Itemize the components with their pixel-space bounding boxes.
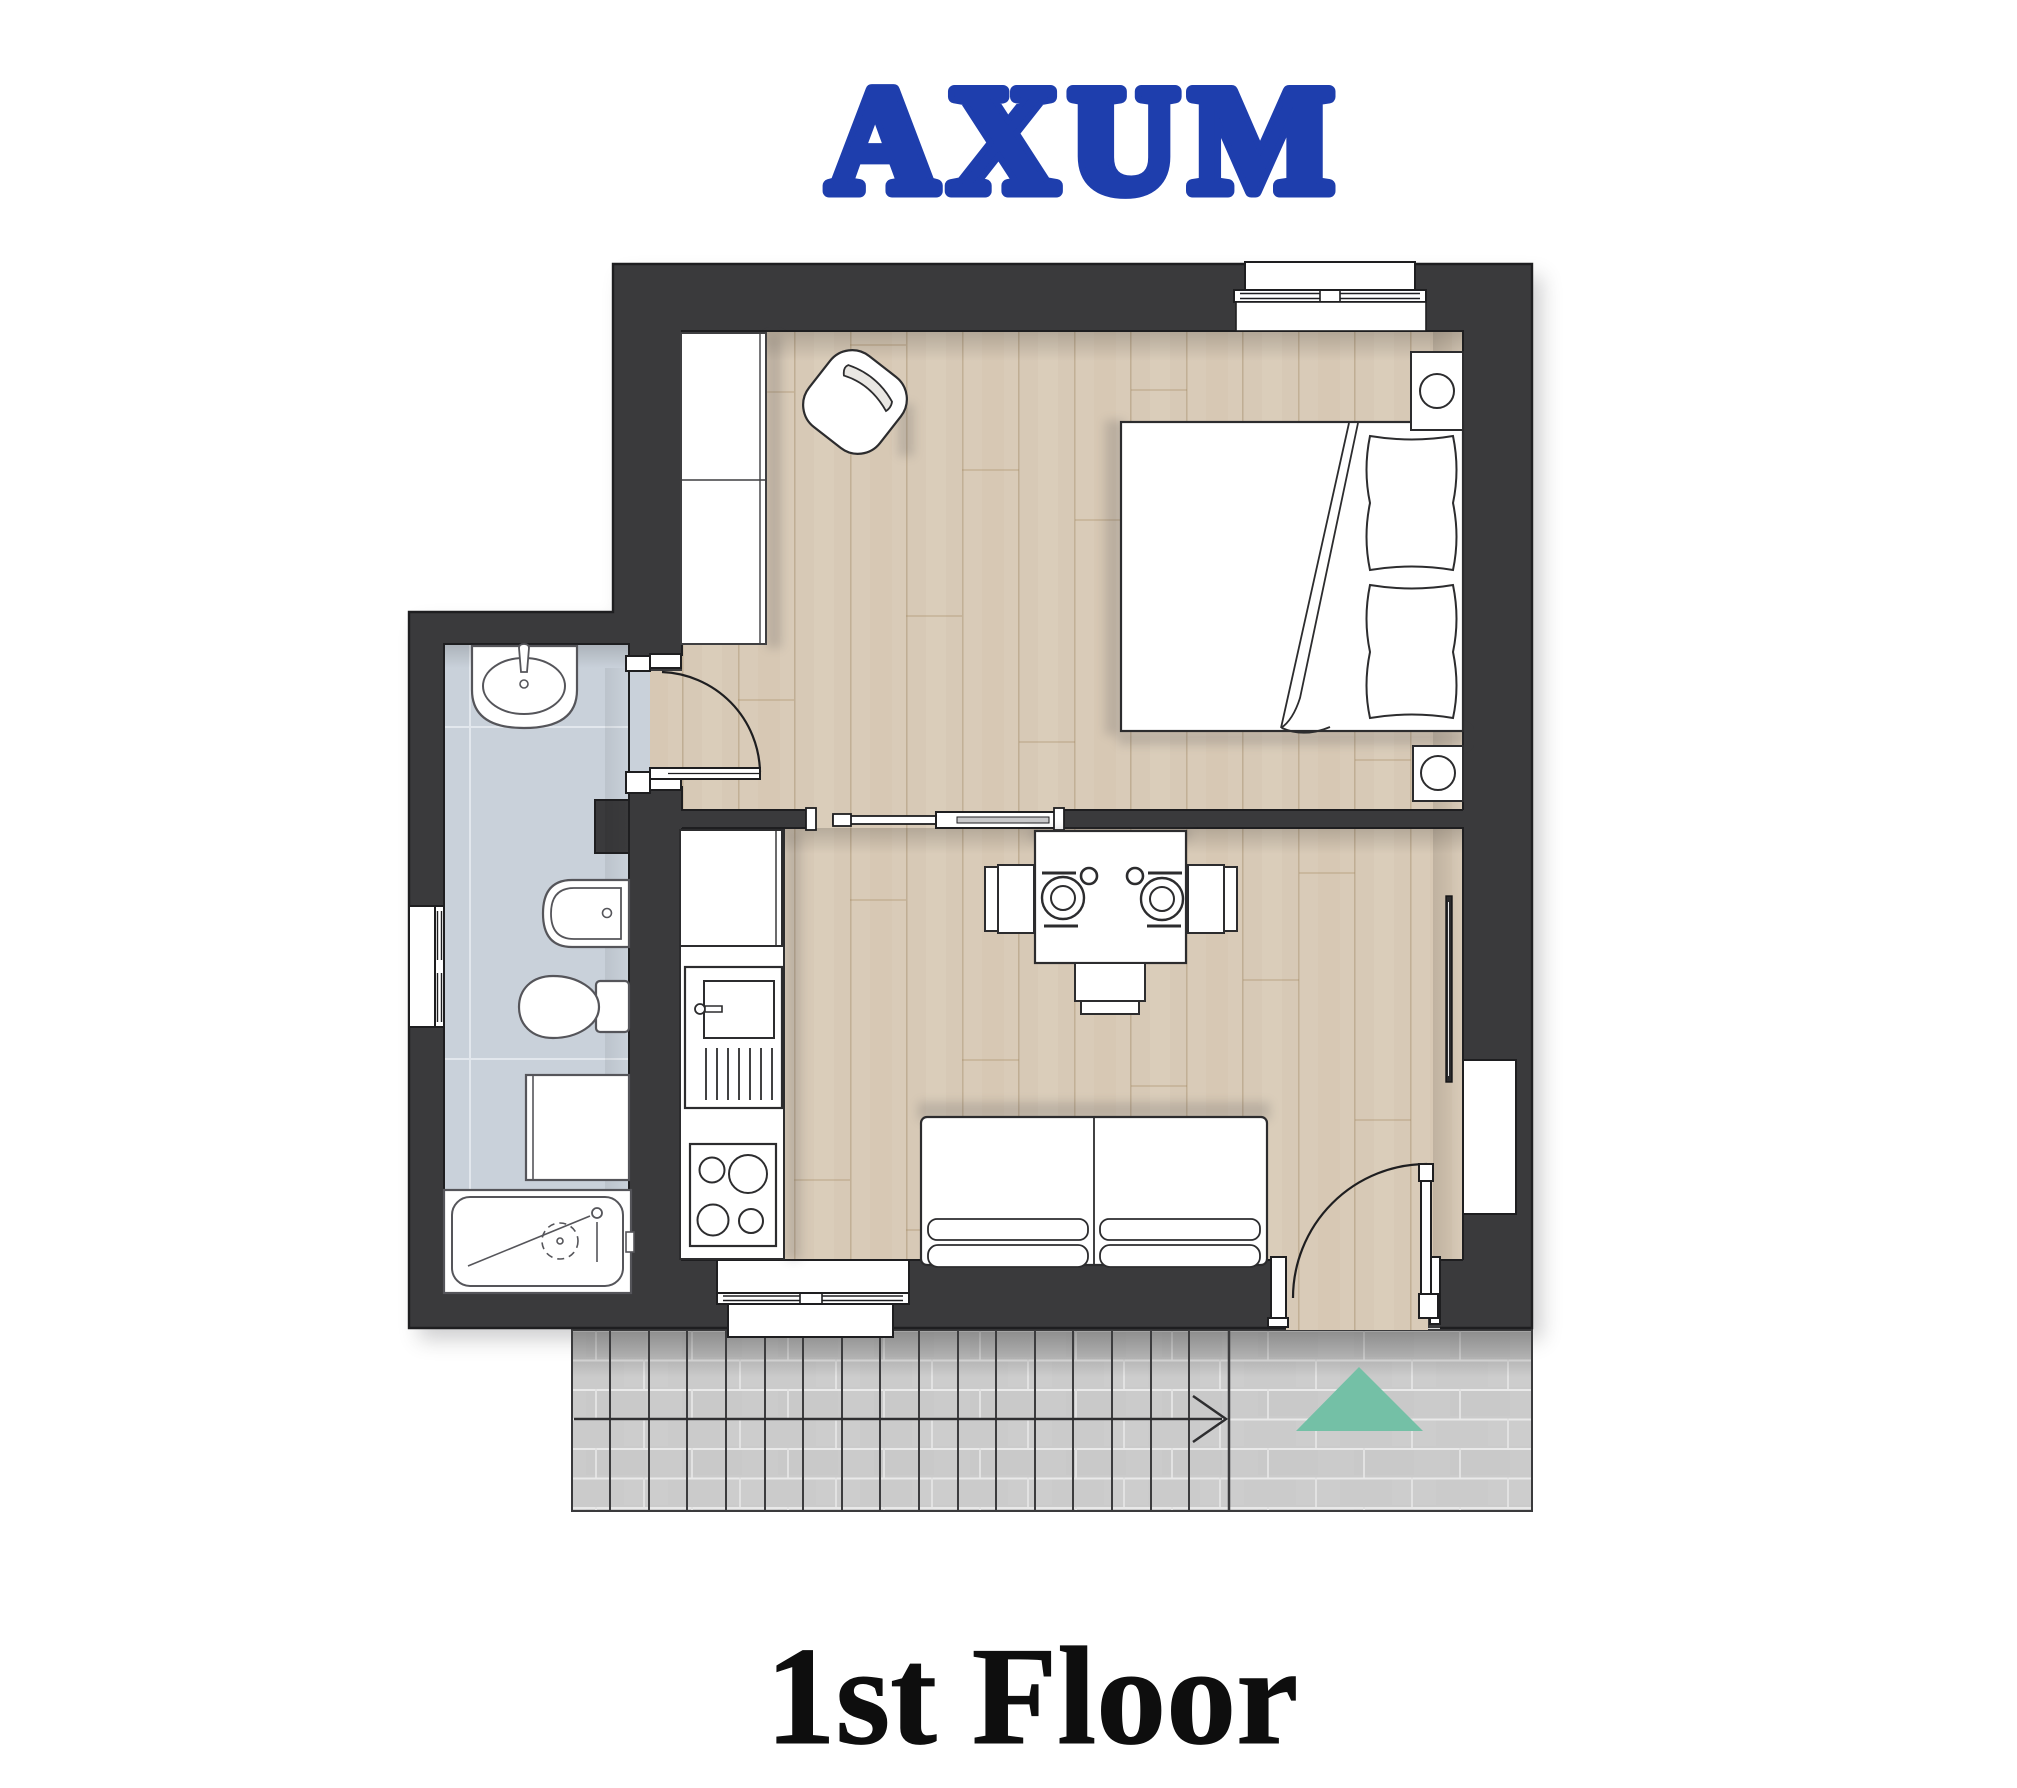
svg-text:1st Floor: 1st Floor	[766, 1619, 1299, 1774]
svg-text:AXUM: AXUM	[828, 56, 1345, 224]
